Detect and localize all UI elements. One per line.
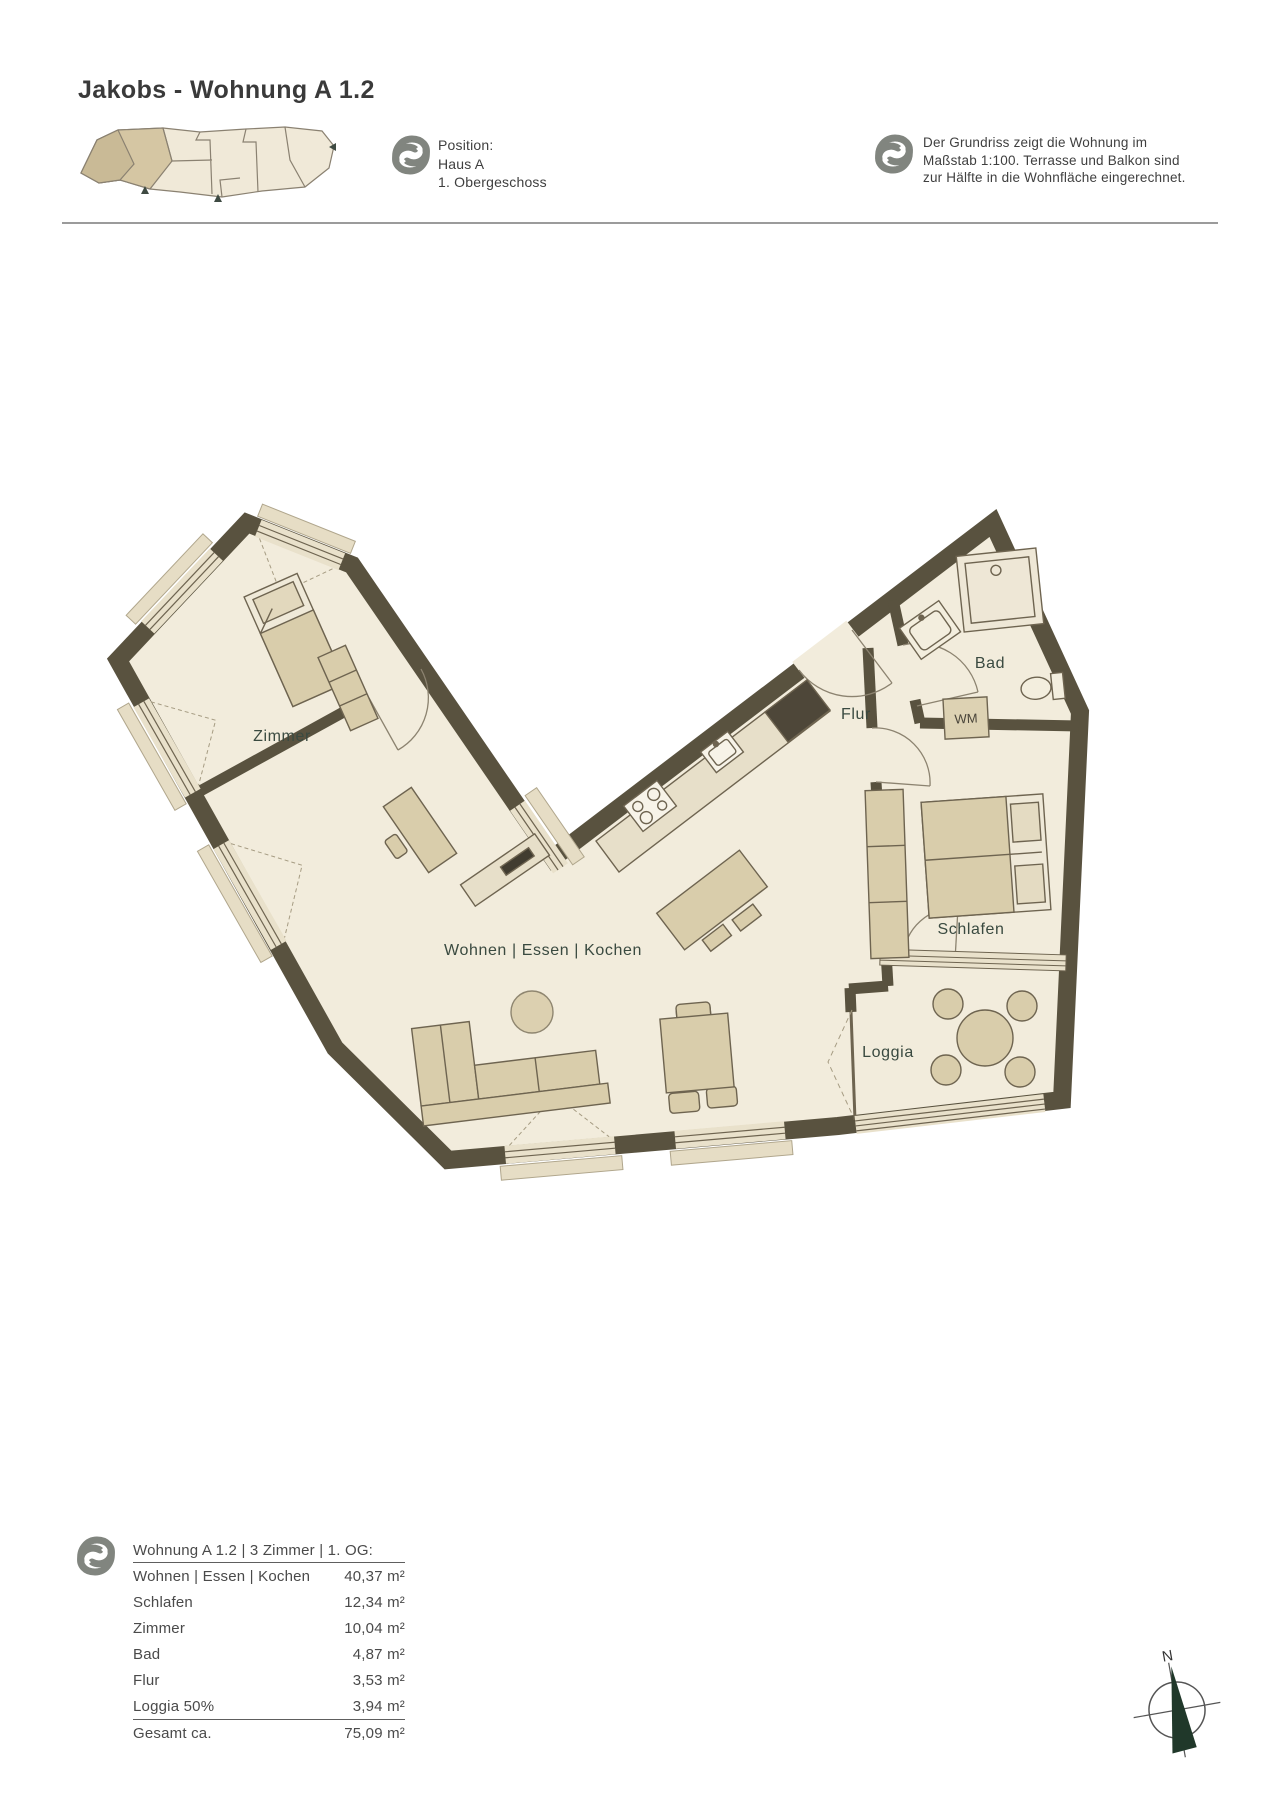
logo-knot-icon [879,138,910,170]
row-label: Loggia 50% [133,1698,214,1715]
row-label: Flur [133,1672,160,1689]
room-label-flur: Flur [841,706,871,723]
floorplan-page: Jakobs - Wohnung A 1.2 Position: Haus A … [0,0,1280,1811]
apartment-plan: Zimmer Wohnen | Essen | Kochen Flur Bad … [117,504,1080,1180]
row-value: 12,34 m² [344,1594,405,1611]
table-row: Bad 4,87 m² [133,1641,405,1667]
shower [956,548,1044,632]
room-label-wohnen: Wohnen | Essen | Kochen [444,942,642,959]
row-value: 3,94 m² [353,1698,405,1715]
row-value: 3,53 m² [353,1672,405,1689]
table-row: Flur 3,53 m² [133,1667,405,1693]
row-value: 40,37 m² [344,1568,405,1585]
compass-north-label: N [1161,1647,1175,1666]
north-needle [1158,1664,1198,1753]
side-table [511,991,553,1033]
area-table-header: Wohnung A 1.2 | 3 Zimmer | 1. OG: [133,1538,405,1563]
table-row: Loggia 50% 3,94 m² [133,1693,405,1719]
row-label: Bad [133,1646,160,1663]
washing-machine-label: WM [954,710,978,726]
row-label: Zimmer [133,1620,185,1637]
table-total-row: Gesamt ca. 75,09 m² [133,1719,405,1746]
table-row: Wohnen | Essen | Kochen 40,37 m² [133,1563,405,1589]
table-row: Zimmer 10,04 m² [133,1615,405,1641]
area-table-header-text: Wohnung A 1.2 | 3 Zimmer | 1. OG: [133,1542,373,1559]
room-label-loggia: Loggia [862,1044,914,1061]
row-value: 10,04 m² [344,1620,405,1637]
logo-knot-icon [81,1540,112,1572]
site-plan-thumbnail [81,127,334,197]
logo-knot-icon [396,139,427,171]
row-value: 4,87 m² [353,1646,405,1663]
table-row: Schlafen 12,34 m² [133,1589,405,1615]
row-label: Wohnen | Essen | Kochen [133,1568,310,1585]
total-value: 75,09 m² [344,1725,405,1742]
double-bed [921,794,1051,918]
row-label: Schlafen [133,1594,193,1611]
wardrobe [865,789,909,958]
compass-icon: N [1123,1640,1229,1765]
room-label-bad: Bad [975,655,1005,672]
total-label: Gesamt ca. [133,1725,212,1742]
room-label-schlafen: Schlafen [937,921,1004,938]
room-label-zimmer: Zimmer [253,728,311,745]
area-table: Wohnung A 1.2 | 3 Zimmer | 1. OG: Wohnen… [133,1538,405,1746]
